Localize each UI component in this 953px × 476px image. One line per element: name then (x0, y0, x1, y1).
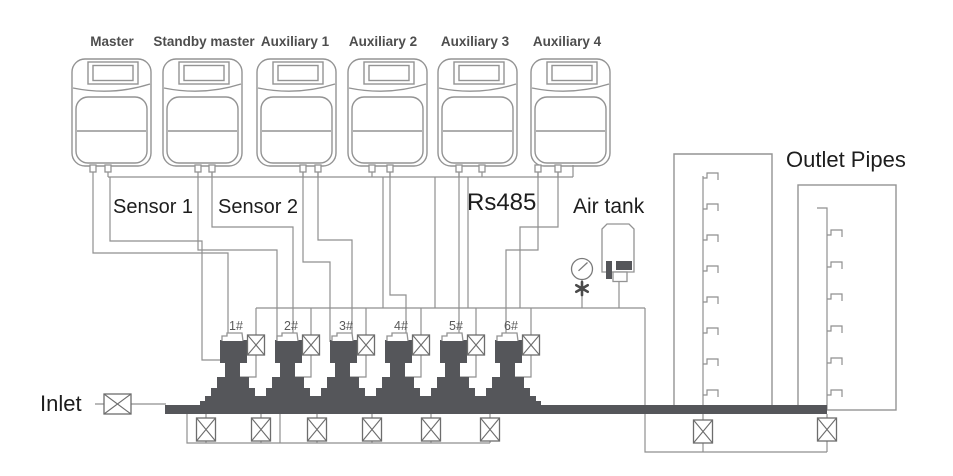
pump-system-diagram: Master Standby master Auxiliary 1 Auxili… (0, 0, 953, 476)
suction-valve-3-icon (308, 418, 327, 441)
gauge-valve-icon (576, 282, 587, 295)
sensor2-label: Sensor 2 (218, 196, 298, 218)
pump-6-label: 6# (504, 319, 518, 333)
controller-master-label: Master (90, 34, 134, 49)
controller-aux2-label: Auxiliary 2 (349, 34, 417, 49)
riser1-floor-branches (703, 173, 718, 397)
suction-valve-5-icon (422, 418, 441, 441)
suction-loop-pipe (187, 414, 490, 443)
rs485-drop-wire (520, 165, 558, 308)
suction-valve-2-icon (252, 418, 271, 441)
riser2-floor-branches (827, 230, 842, 397)
outlet-feed-pipe (645, 308, 827, 452)
discharge-valve-4-icon (413, 335, 430, 355)
controller-auxiliary-3 (438, 59, 517, 166)
controller-auxiliary-1 (257, 59, 336, 166)
tank-band-horizontal (616, 261, 632, 270)
inlet-valve-icon (104, 394, 131, 414)
riser2-pipe (817, 208, 827, 452)
controller-auxiliary-2 (348, 59, 427, 166)
controller-aux3-label: Auxiliary 3 (441, 34, 510, 49)
bus-leg-wires (108, 165, 573, 177)
diagram-canvas: Master Standby master Auxiliary 1 Auxili… (0, 0, 953, 476)
suction-valve-stubs (206, 414, 490, 443)
air-tank-icon (602, 224, 634, 282)
pump-3-label: 3# (339, 319, 353, 333)
pump-2-cap (277, 333, 298, 341)
riser1-enclosure (674, 154, 772, 405)
tank-band-vertical (606, 261, 612, 279)
controller-standby-label: Standby master (153, 34, 255, 49)
discharge-valve-3-icon (358, 335, 375, 355)
pressure-gauge-icon (572, 259, 593, 296)
riser2-enclosure (798, 185, 896, 410)
rs485-label: Rs485 (467, 189, 536, 216)
pump-3-cap (332, 333, 353, 341)
controller-aux1-label: Auxiliary 1 (261, 34, 330, 49)
suction-valve-6-icon (481, 418, 500, 441)
pump-4-cap (387, 333, 408, 341)
air-tank-label: Air tank (573, 195, 645, 218)
pump-6-cap (497, 333, 518, 341)
controller-units (72, 59, 610, 172)
outlet-valve-1-icon (694, 420, 713, 443)
pump-1-cap (222, 333, 243, 341)
pump-5-label: 5# (449, 319, 463, 333)
inlet-label: Inlet (40, 391, 82, 416)
discharge-valve-1-icon (248, 335, 265, 355)
discharge-valve-6-icon (523, 335, 540, 355)
pump-1-label: 1# (229, 319, 243, 333)
pump-5-cap (442, 333, 463, 341)
controller-standby-master (163, 59, 242, 166)
pump-4-label: 4# (394, 319, 408, 333)
suction-manifold-bar (165, 405, 827, 414)
tank-foot (613, 272, 627, 282)
discharge-valve-5-icon (468, 335, 485, 355)
pump-2-label: 2# (284, 319, 298, 333)
controller-aux4-label: Auxiliary 4 (533, 34, 602, 49)
controller-master (72, 59, 151, 166)
outlet-pipes-label: Outlet Pipes (786, 147, 906, 172)
controller-auxiliary-4 (531, 59, 610, 166)
suction-valve-1-icon (197, 418, 216, 441)
gauge-dial (572, 259, 593, 280)
sensor1-label: Sensor 1 (113, 196, 193, 218)
suction-valve-4-icon (363, 418, 382, 441)
outlet-valve-2-icon (818, 418, 837, 441)
discharge-valve-2-icon (303, 335, 320, 355)
